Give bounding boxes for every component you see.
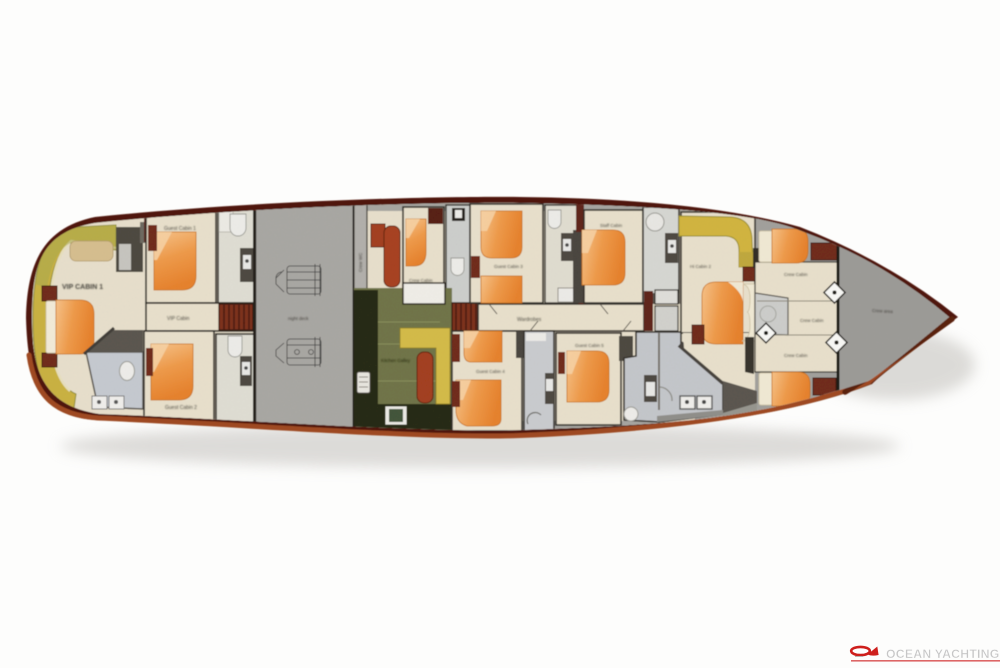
svg-text:OCEAN YACHTING: OCEAN YACHTING bbox=[886, 647, 1000, 661]
